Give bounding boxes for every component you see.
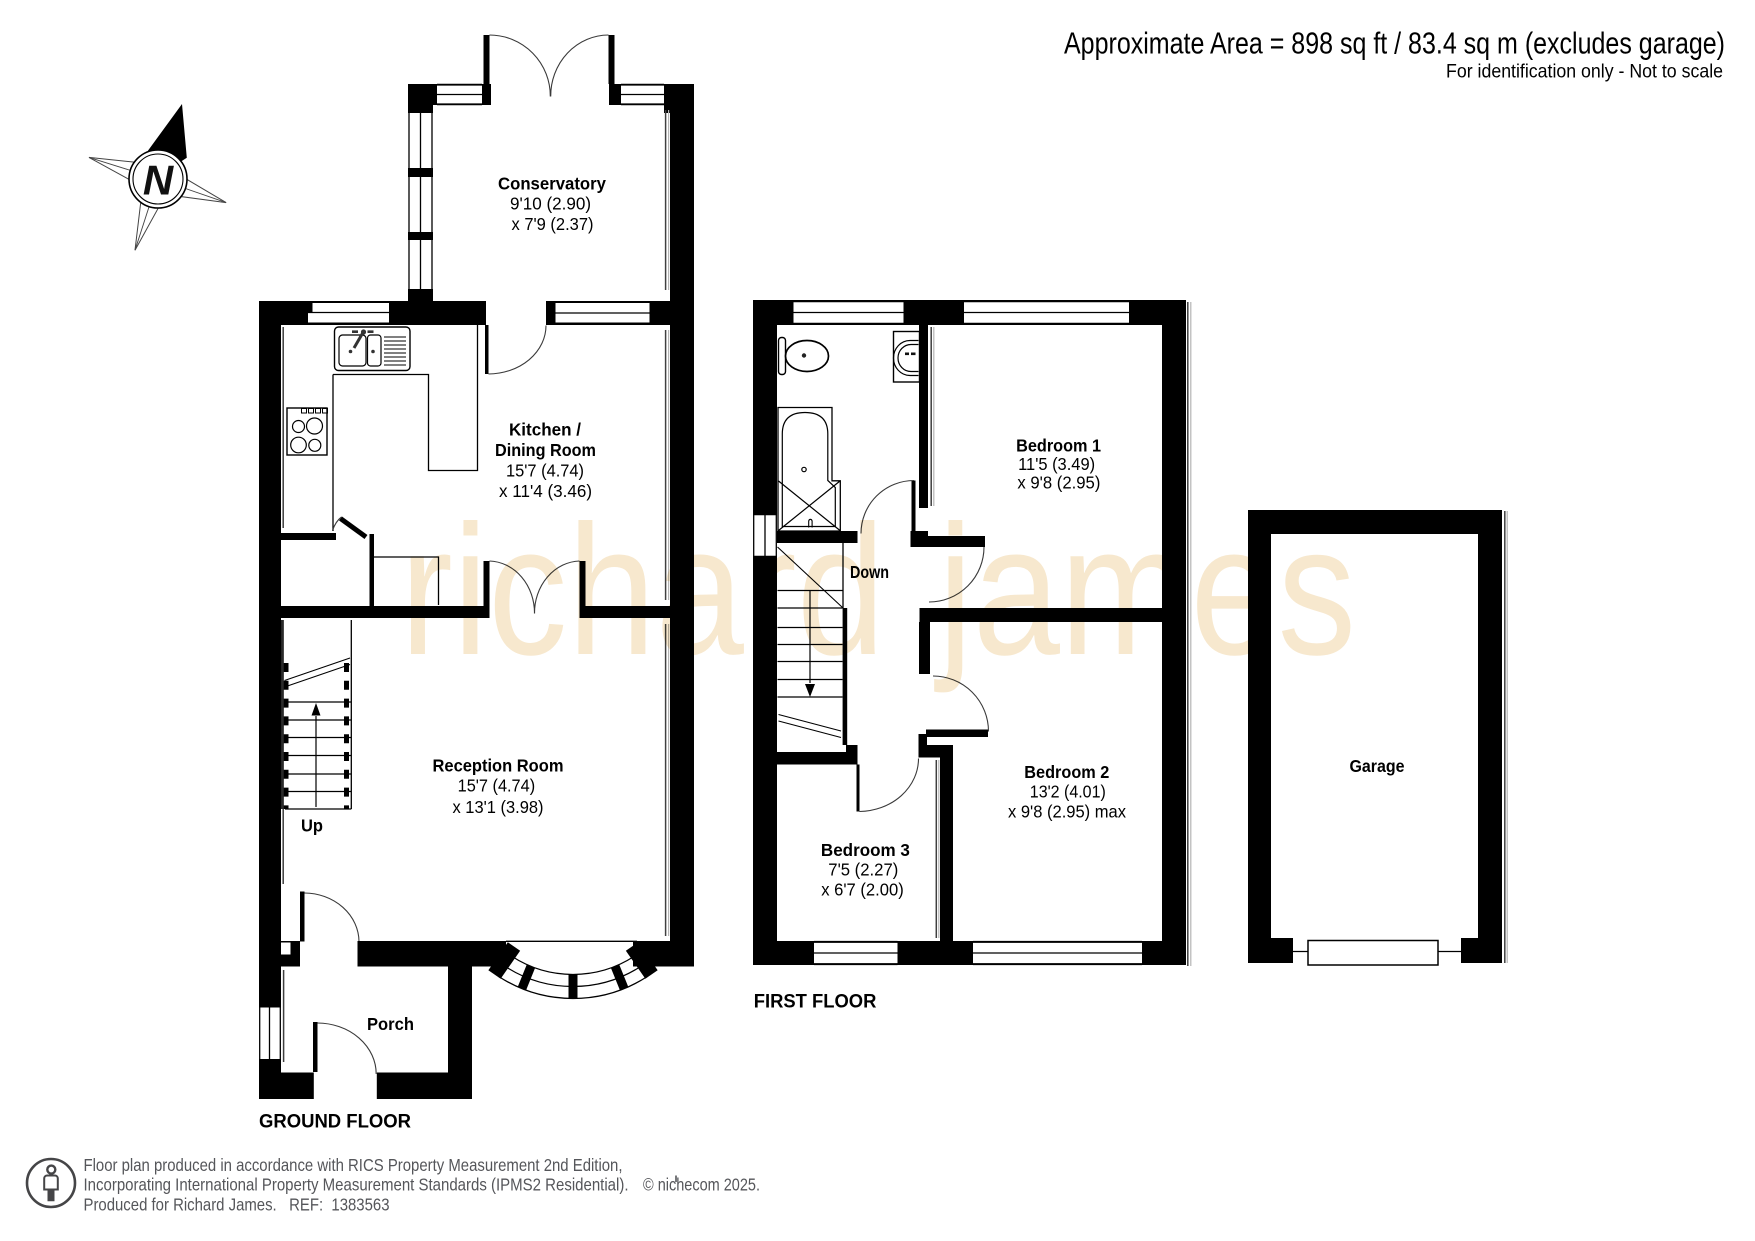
svg-text:N: N [143, 157, 175, 204]
svg-text:Bedroom 2: Bedroom 2 [1024, 762, 1109, 782]
svg-text:Conservatory: Conservatory [498, 174, 606, 194]
svg-text:richard: richard [400, 488, 885, 694]
svg-text:9'10 (2.90): 9'10 (2.90) [510, 194, 591, 214]
svg-text:FIRST FLOOR: FIRST FLOOR [754, 991, 877, 1013]
svg-text:james: james [934, 488, 1356, 694]
svg-text:11'5 (3.49): 11'5 (3.49) [1018, 454, 1095, 474]
svg-text:x 7'9 (2.37): x 7'9 (2.37) [512, 214, 594, 234]
svg-text:Dining Room: Dining Room [495, 440, 596, 460]
svg-text:© nichecom 2025.: © nichecom 2025. [643, 1175, 760, 1195]
svg-text:13'2 (4.01): 13'2 (4.01) [1030, 782, 1106, 802]
svg-text:15'7 (4.74): 15'7 (4.74) [458, 776, 536, 796]
svg-text:Incorporating International Pr: Incorporating International Property Mea… [84, 1175, 629, 1195]
svg-text:GROUND FLOOR: GROUND FLOOR [259, 1111, 411, 1133]
svg-text:7'5 (2.27): 7'5 (2.27) [828, 860, 898, 880]
svg-text:Bedroom 1: Bedroom 1 [1016, 436, 1101, 456]
svg-text:Bedroom 3: Bedroom 3 [821, 840, 910, 860]
svg-text:Up: Up [301, 816, 323, 836]
svg-text:15'7 (4.74): 15'7 (4.74) [506, 461, 584, 481]
svg-text:Approximate Area = 898 sq ft /: Approximate Area = 898 sq ft / 83.4 sq m… [1064, 26, 1725, 61]
svg-text:Reception Room: Reception Room [433, 756, 564, 776]
svg-text:x 13'1 (3.98): x 13'1 (3.98) [453, 797, 544, 817]
svg-text:For identification only - Not: For identification only - Not to scale [1446, 61, 1723, 83]
svg-text:Produced for Richard James.: Produced for Richard James. REF: 1383563 [84, 1195, 390, 1215]
svg-text:Kitchen /: Kitchen / [509, 420, 581, 440]
svg-text:Garage: Garage [1350, 756, 1405, 776]
svg-text:x 9'8 (2.95) max: x 9'8 (2.95) max [1008, 802, 1126, 822]
svg-text:Floor plan produced in accorda: Floor plan produced in accordance with R… [84, 1155, 623, 1175]
svg-text:Porch: Porch [367, 1014, 414, 1034]
svg-text:x 6'7 (2.00): x 6'7 (2.00) [821, 880, 904, 900]
